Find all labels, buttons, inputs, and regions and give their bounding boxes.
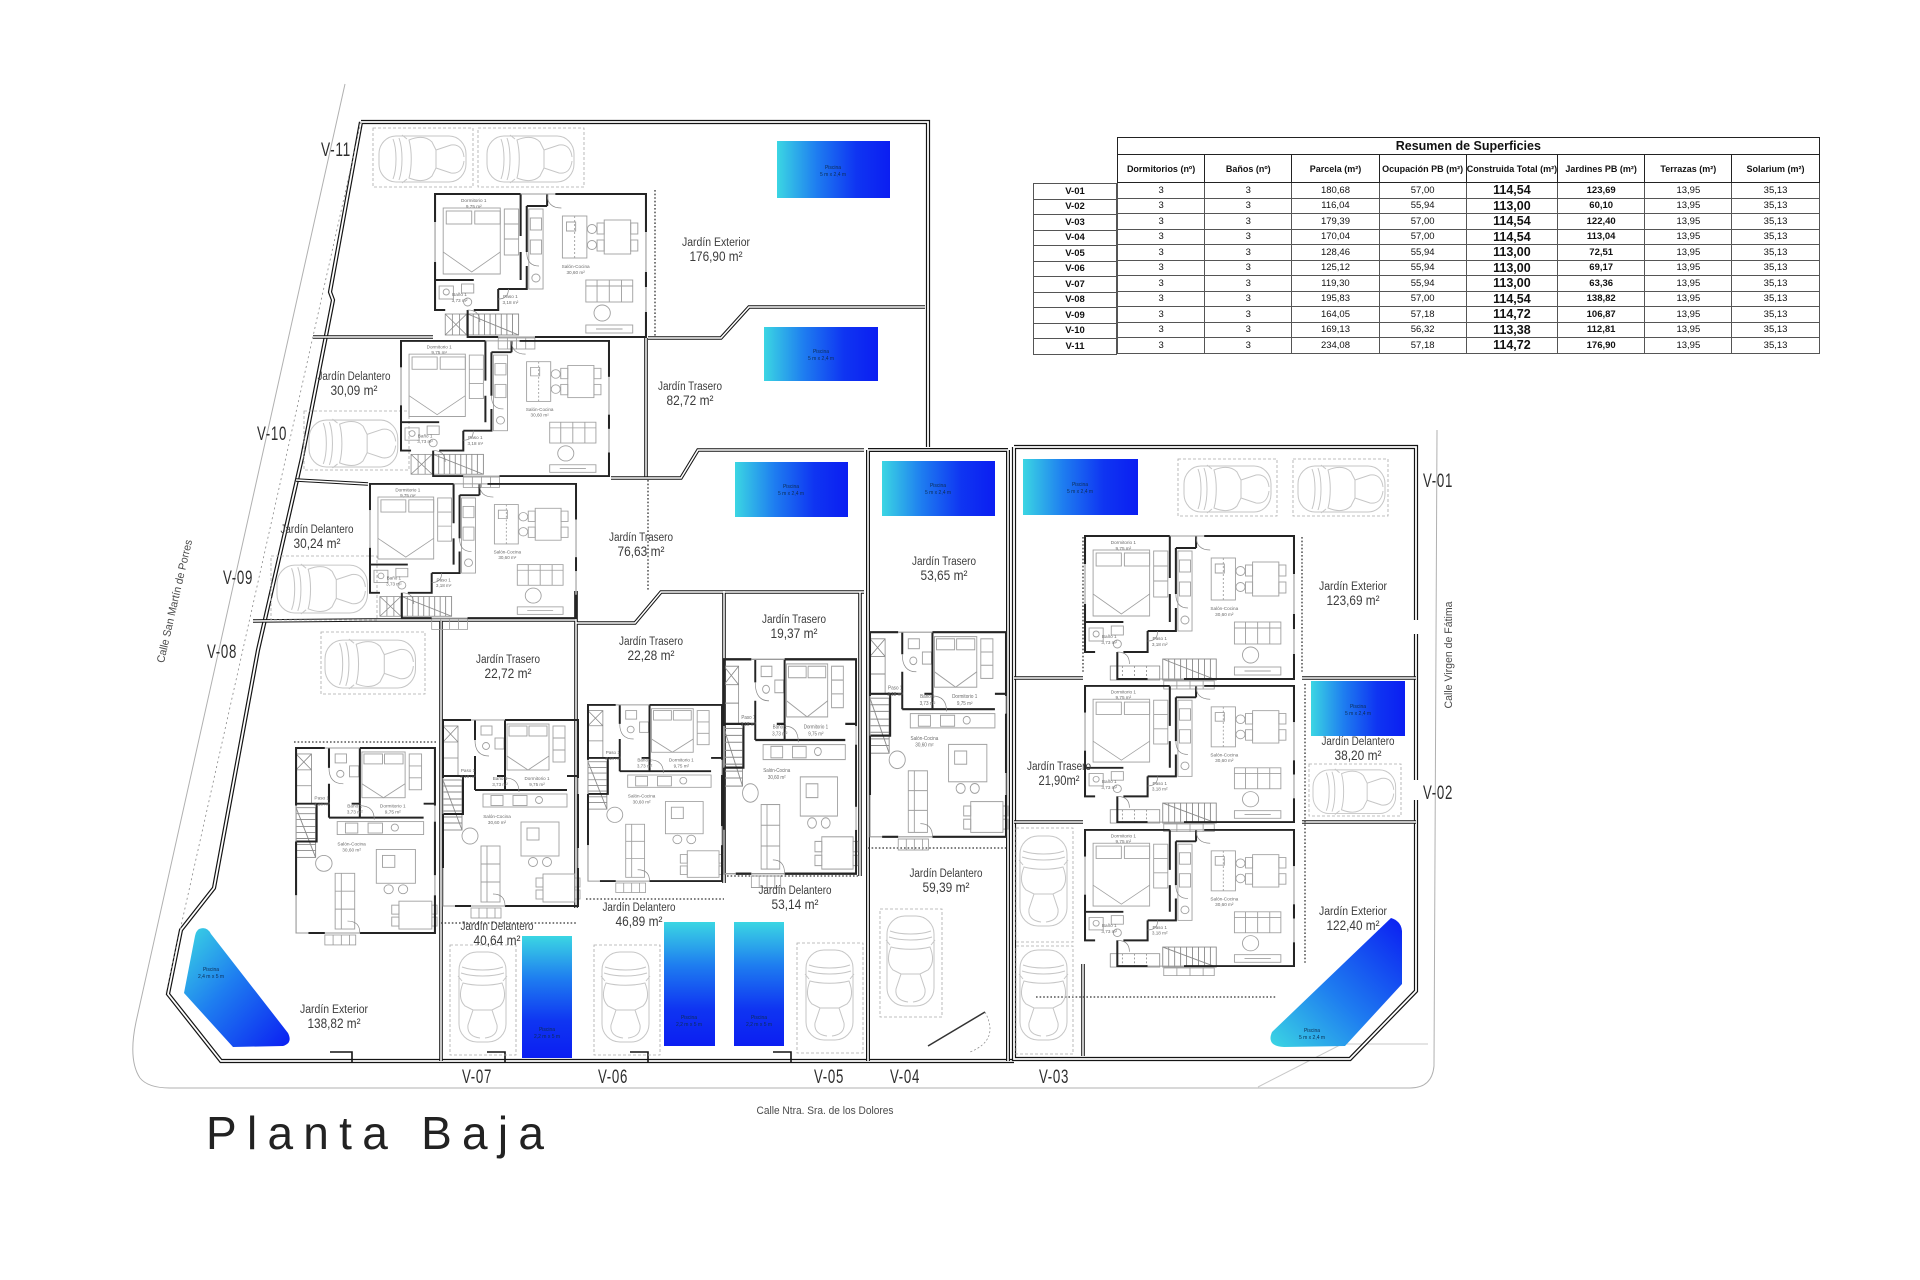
svg-text:Baño 1: Baño 1 xyxy=(452,292,467,297)
svg-text:Dormitorio 1: Dormitorio 1 xyxy=(395,488,420,493)
svg-text:Calle Virgen de Fátima: Calle Virgen de Fátima xyxy=(1443,601,1455,709)
svg-text:3,73 m²: 3,73 m² xyxy=(452,298,468,303)
svg-text:V-07: V-07 xyxy=(462,1067,492,1088)
svg-text:5 m x 2,4 m: 5 m x 2,4 m xyxy=(820,172,846,178)
svg-text:3,18 m²: 3,18 m² xyxy=(741,722,757,728)
svg-text:Baño 1: Baño 1 xyxy=(1102,923,1117,928)
svg-text:30,60 m²: 30,60 m² xyxy=(1215,612,1234,617)
svg-text:Baño 1: Baño 1 xyxy=(920,694,935,700)
svg-text:Salón-Cocina: Salón-Cocina xyxy=(1210,753,1238,758)
svg-text:9,75 m²: 9,75 m² xyxy=(431,350,447,355)
svg-text:Baño 1: Baño 1 xyxy=(637,758,652,763)
svg-text:Salón-Cocina: Salón-Cocina xyxy=(628,794,656,799)
svg-text:Dormitorio 1: Dormitorio 1 xyxy=(427,345,453,350)
svg-text:30,60 m²: 30,60 m² xyxy=(633,800,652,805)
svg-text:9,75 m²: 9,75 m² xyxy=(400,493,416,498)
svg-text:Piscina: Piscina xyxy=(825,165,841,171)
svg-text:Baño 1: Baño 1 xyxy=(1102,634,1117,639)
svg-text:Dormitorio 1: Dormitorio 1 xyxy=(804,724,829,730)
svg-text:V-02: V-02 xyxy=(1423,783,1453,804)
svg-text:Baño 1: Baño 1 xyxy=(418,433,433,438)
svg-text:Dormitorio 1: Dormitorio 1 xyxy=(669,758,694,763)
svg-text:5 m x 2,4 m: 5 m x 2,4 m xyxy=(1345,711,1371,717)
svg-text:30,09 m²: 30,09 m² xyxy=(331,382,378,398)
svg-text:Paso 1: Paso 1 xyxy=(468,435,483,440)
svg-text:21,90m²: 21,90m² xyxy=(1039,772,1080,788)
svg-text:2,4 m x 5 m: 2,4 m x 5 m xyxy=(198,974,224,980)
svg-text:30,60 m²: 30,60 m² xyxy=(768,775,786,781)
svg-text:Piscina: Piscina xyxy=(1350,704,1366,710)
svg-text:30,60 m²: 30,60 m² xyxy=(566,270,585,275)
svg-text:Piscina: Piscina xyxy=(539,1027,555,1033)
svg-text:53,14 m²: 53,14 m² xyxy=(772,896,819,912)
svg-text:Paso 1: Paso 1 xyxy=(437,578,452,583)
svg-text:9,75 m²: 9,75 m² xyxy=(1116,695,1132,700)
svg-text:Paso 1: Paso 1 xyxy=(314,796,329,801)
svg-text:30,24 m²: 30,24 m² xyxy=(294,535,341,551)
svg-text:3,73 m²: 3,73 m² xyxy=(492,782,508,787)
svg-text:Piscina: Piscina xyxy=(681,1015,697,1021)
svg-text:3,73 m²: 3,73 m² xyxy=(920,701,936,707)
svg-text:Paso 1: Paso 1 xyxy=(606,750,621,755)
svg-text:V-10: V-10 xyxy=(257,424,287,445)
svg-text:30,60 m²: 30,60 m² xyxy=(1215,758,1234,763)
svg-text:Salón-Cocina: Salón-Cocina xyxy=(1210,606,1238,611)
svg-text:Piscina: Piscina xyxy=(813,349,829,355)
svg-text:Paso 1: Paso 1 xyxy=(461,768,476,773)
svg-text:19,37 m²: 19,37 m² xyxy=(771,625,818,641)
svg-text:2,2 m x 5 m: 2,2 m x 5 m xyxy=(534,1034,560,1040)
svg-text:V-08: V-08 xyxy=(207,642,237,663)
svg-text:9,75 m²: 9,75 m² xyxy=(674,764,690,769)
svg-text:3,18 m²: 3,18 m² xyxy=(1152,787,1168,792)
svg-text:3,18 m²: 3,18 m² xyxy=(1152,642,1168,647)
svg-text:30,60 m²: 30,60 m² xyxy=(915,742,934,748)
svg-text:Salón-Cocina: Salón-Cocina xyxy=(562,264,590,269)
svg-text:Dormitorio 1: Dormitorio 1 xyxy=(1111,690,1137,695)
svg-text:Piscina: Piscina xyxy=(930,483,946,489)
svg-text:V-11: V-11 xyxy=(321,140,351,161)
svg-text:3,18 m²: 3,18 m² xyxy=(460,774,476,779)
svg-text:82,72 m²: 82,72 m² xyxy=(667,392,714,408)
svg-text:38,20 m²: 38,20 m² xyxy=(1335,747,1382,763)
svg-text:22,72 m²: 22,72 m² xyxy=(485,665,532,681)
svg-text:Calle Ntra. Sra. de los Dolore: Calle Ntra. Sra. de los Dolores xyxy=(757,1105,894,1117)
svg-text:Salón-Cocina: Salón-Cocina xyxy=(483,814,511,819)
svg-text:3,18 m²: 3,18 m² xyxy=(314,802,330,807)
svg-text:5 m x 2,4 m: 5 m x 2,4 m xyxy=(808,356,834,362)
svg-text:9,75 m²: 9,75 m² xyxy=(957,701,973,707)
svg-text:Salón-Cocina: Salón-Cocina xyxy=(911,736,939,742)
svg-text:Baño 1: Baño 1 xyxy=(493,776,508,781)
svg-text:Piscina: Piscina xyxy=(783,484,799,490)
svg-text:V-01: V-01 xyxy=(1423,471,1453,492)
svg-text:Dormitorio 1: Dormitorio 1 xyxy=(952,694,977,700)
svg-text:3,73 m²: 3,73 m² xyxy=(1101,640,1117,645)
svg-text:Baño 1: Baño 1 xyxy=(387,576,402,581)
svg-text:V-03: V-03 xyxy=(1039,1067,1069,1088)
svg-text:3,73 m²: 3,73 m² xyxy=(347,810,363,815)
svg-text:Dormitorio 1: Dormitorio 1 xyxy=(380,804,406,809)
svg-text:Baño 1: Baño 1 xyxy=(347,804,362,809)
svg-text:3,18 m²: 3,18 m² xyxy=(436,583,452,588)
svg-text:V-05: V-05 xyxy=(814,1067,844,1088)
svg-text:Salón-Cocina: Salón-Cocina xyxy=(526,407,554,412)
svg-text:Salón-Cocina: Salón-Cocina xyxy=(1210,897,1238,902)
svg-text:Salón-Cocina: Salón-Cocina xyxy=(494,549,522,554)
svg-text:Paso 1: Paso 1 xyxy=(503,294,518,299)
svg-text:30,60 m²: 30,60 m² xyxy=(488,820,507,825)
svg-text:Dormitorio 1: Dormitorio 1 xyxy=(461,198,487,203)
svg-text:30,60 m²: 30,60 m² xyxy=(1215,902,1234,907)
svg-text:3,73 m²: 3,73 m² xyxy=(386,581,402,586)
svg-text:Paso 1: Paso 1 xyxy=(1153,781,1168,786)
svg-text:2,2 m x 5 m: 2,2 m x 5 m xyxy=(676,1022,702,1028)
svg-text:5 m x 2,4 m: 5 m x 2,4 m xyxy=(1299,1035,1325,1041)
svg-text:3,18 m²: 3,18 m² xyxy=(503,300,519,305)
svg-text:5 m x 2,4 m: 5 m x 2,4 m xyxy=(778,491,804,497)
svg-text:Salón-Cocina: Salón-Cocina xyxy=(337,842,366,847)
svg-text:3,18 m²: 3,18 m² xyxy=(887,692,903,698)
svg-text:9,75 m²: 9,75 m² xyxy=(808,731,824,737)
svg-text:V-09: V-09 xyxy=(223,568,253,589)
svg-text:46,89 m²: 46,89 m² xyxy=(616,913,663,929)
svg-text:Piscina: Piscina xyxy=(203,967,219,973)
svg-text:30,60 m²: 30,60 m² xyxy=(342,848,361,853)
svg-text:22,28 m²: 22,28 m² xyxy=(628,647,675,663)
svg-text:Piscina: Piscina xyxy=(1304,1028,1320,1034)
svg-text:Paso 1: Paso 1 xyxy=(741,715,755,721)
svg-text:30,60 m²: 30,60 m² xyxy=(498,555,517,560)
svg-text:59,39 m²: 59,39 m² xyxy=(923,879,970,895)
svg-text:3,73 m²: 3,73 m² xyxy=(637,764,653,769)
svg-text:9,75 m²: 9,75 m² xyxy=(1116,546,1132,551)
svg-text:3,18 m²: 3,18 m² xyxy=(605,756,621,761)
svg-text:V-06: V-06 xyxy=(598,1067,628,1088)
svg-text:123,69 m²: 123,69 m² xyxy=(1327,592,1380,608)
svg-text:176,90 m²: 176,90 m² xyxy=(690,248,743,264)
svg-text:Paso 1: Paso 1 xyxy=(1153,636,1168,641)
svg-text:Piscina: Piscina xyxy=(1072,482,1088,488)
svg-text:3,18 m²: 3,18 m² xyxy=(468,441,484,446)
svg-text:3,73 m²: 3,73 m² xyxy=(772,731,788,737)
svg-text:3,73 m²: 3,73 m² xyxy=(1101,929,1117,934)
svg-text:138,82 m²: 138,82 m² xyxy=(308,1015,361,1031)
svg-text:V-04: V-04 xyxy=(890,1067,920,1088)
svg-text:Piscina: Piscina xyxy=(751,1015,767,1021)
svg-text:9,75 m²: 9,75 m² xyxy=(1116,839,1132,844)
svg-text:Dormitorio 1: Dormitorio 1 xyxy=(1111,540,1137,545)
svg-text:Baño 1: Baño 1 xyxy=(1102,779,1117,784)
svg-text:Salón-Cocina: Salón-Cocina xyxy=(763,768,790,774)
svg-text:9,75 m²: 9,75 m² xyxy=(529,782,545,787)
svg-text:122,40 m²: 122,40 m² xyxy=(1327,917,1380,933)
svg-text:3,73 m²: 3,73 m² xyxy=(1101,785,1117,790)
svg-text:9,75 m²: 9,75 m² xyxy=(466,204,482,209)
svg-text:53,65 m²: 53,65 m² xyxy=(921,567,968,583)
svg-text:Paso 1: Paso 1 xyxy=(1153,925,1168,930)
svg-text:3,18 m²: 3,18 m² xyxy=(1152,931,1168,936)
svg-text:40,64 m²: 40,64 m² xyxy=(474,932,521,948)
svg-text:Baño 1: Baño 1 xyxy=(773,724,787,730)
svg-text:Paso 1: Paso 1 xyxy=(888,685,903,691)
svg-text:76,63 m²: 76,63 m² xyxy=(618,543,665,559)
svg-text:5 m x 2,4 m: 5 m x 2,4 m xyxy=(925,490,951,496)
svg-text:9,75 m²: 9,75 m² xyxy=(385,810,401,815)
svg-text:5 m x 2,4 m: 5 m x 2,4 m xyxy=(1067,489,1093,495)
svg-text:30,60 m²: 30,60 m² xyxy=(531,413,550,418)
svg-text:2,2 m x 5 m: 2,2 m x 5 m xyxy=(746,1022,772,1028)
svg-text:Dormitorio 1: Dormitorio 1 xyxy=(524,776,549,781)
svg-text:Dormitorio 1: Dormitorio 1 xyxy=(1111,834,1137,839)
svg-text:3,73 m²: 3,73 m² xyxy=(417,439,433,444)
